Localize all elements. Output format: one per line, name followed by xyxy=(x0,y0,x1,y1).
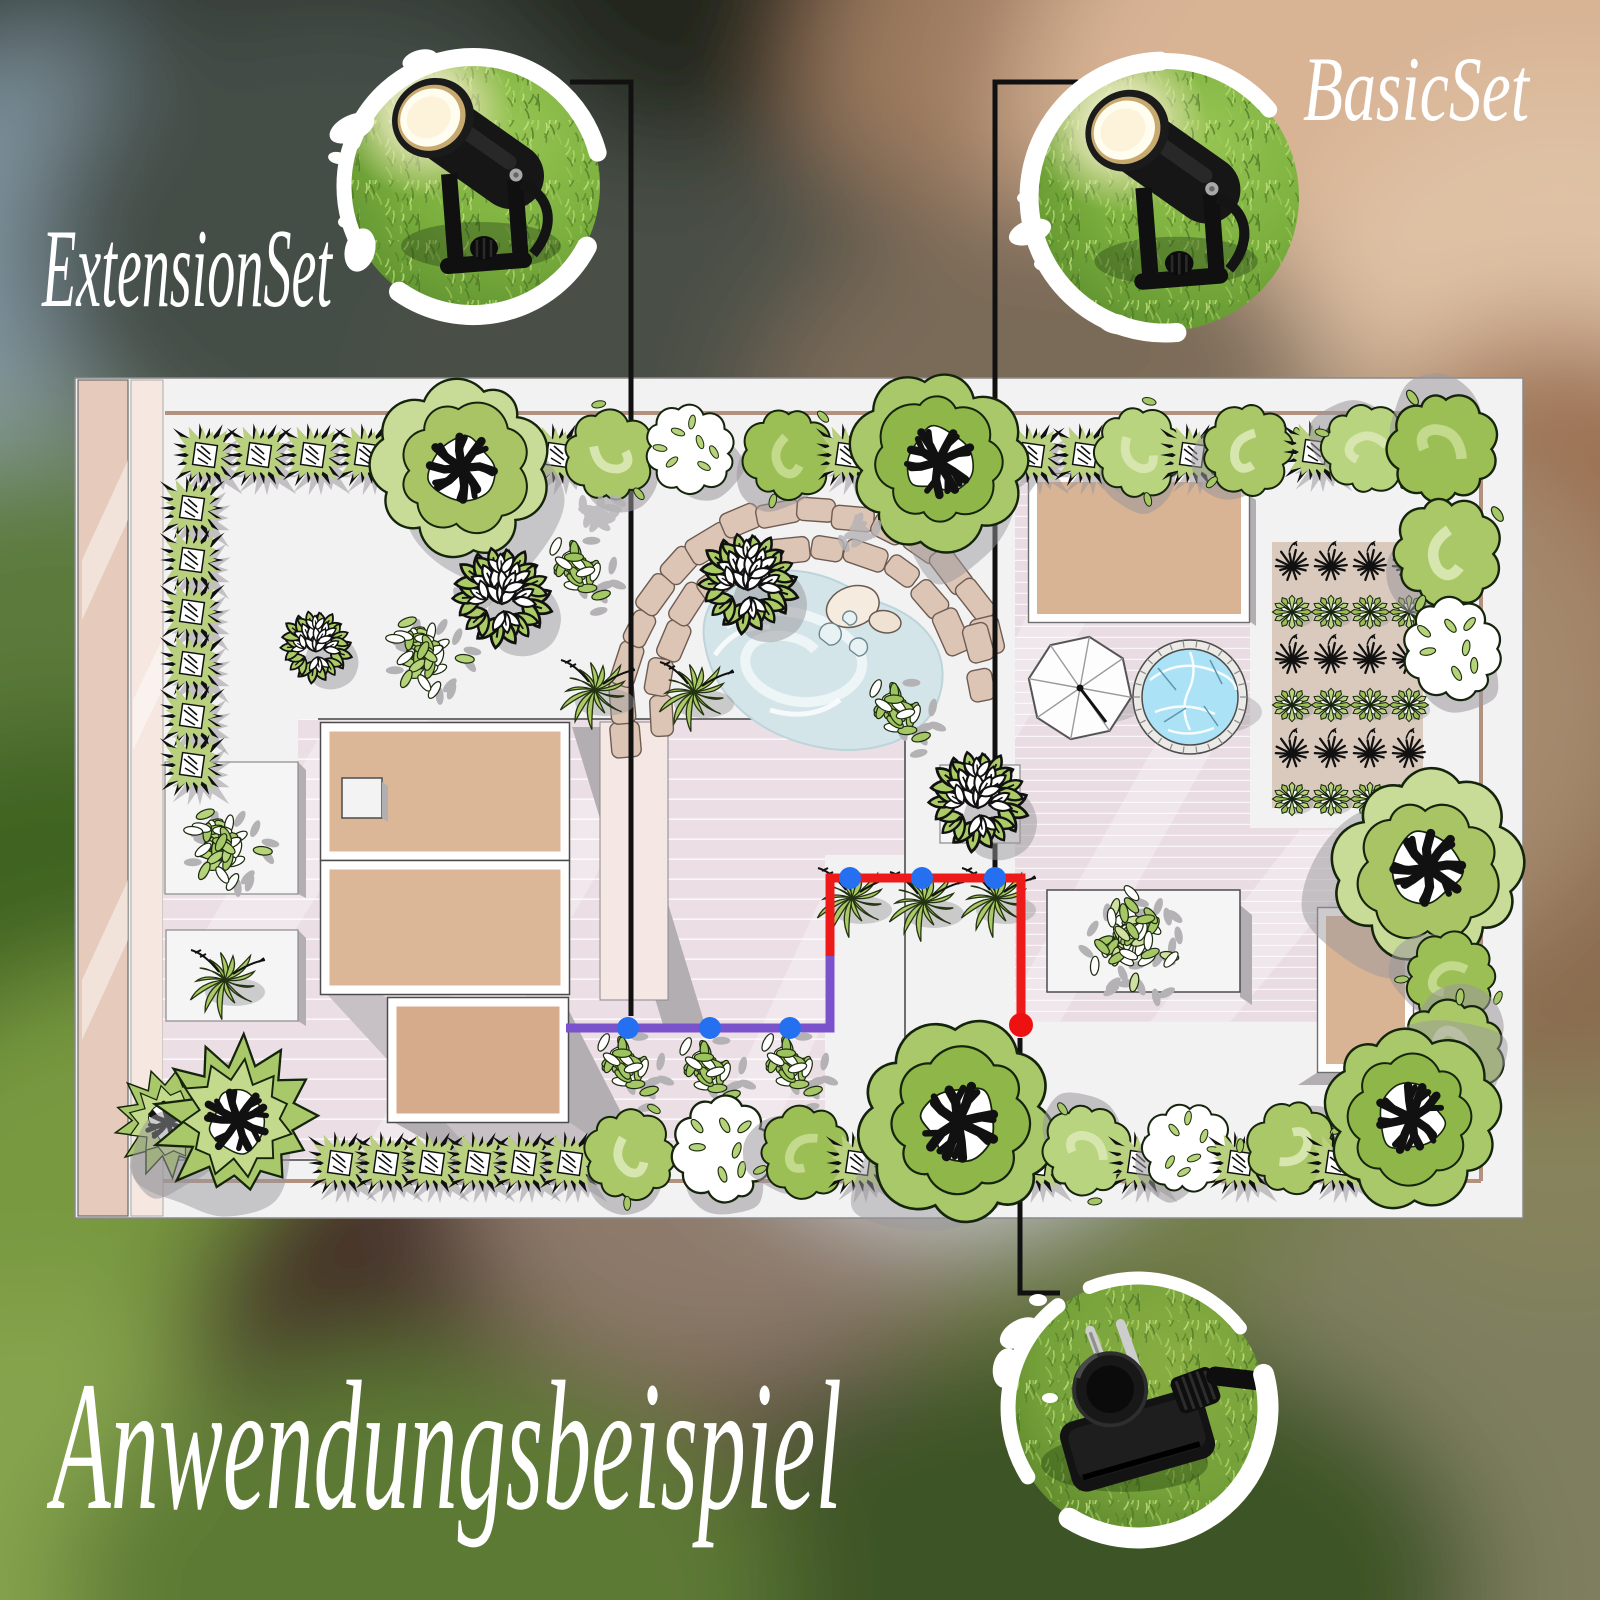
svg-text:BasicSet: BasicSet xyxy=(1303,38,1531,140)
svg-text:Anwendungsbeispiel: Anwendungsbeispiel xyxy=(46,1344,842,1549)
svg-text:ExtensionSet: ExtensionSet xyxy=(41,207,333,331)
